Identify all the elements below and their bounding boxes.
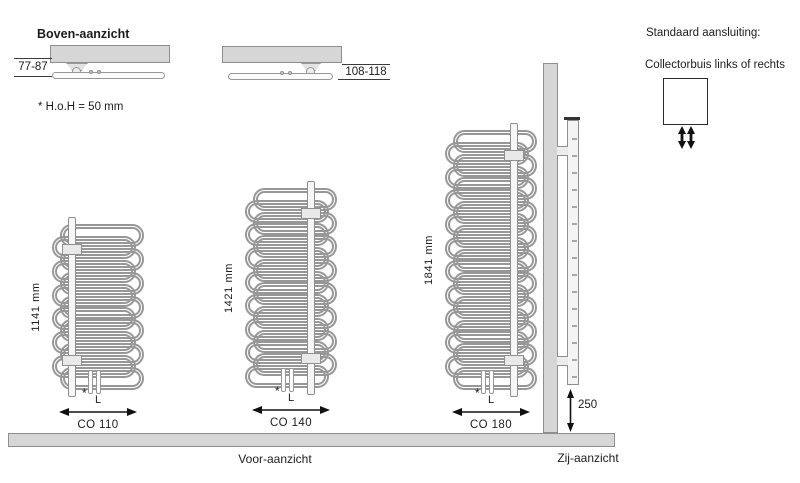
front-view-label: Voor-aanzicht — [215, 453, 335, 467]
width-dim-label: L — [59, 395, 137, 406]
side-bracket-bottom — [557, 356, 568, 366]
model-label: CO 110 — [59, 420, 137, 432]
width-arrow-icon — [59, 407, 137, 417]
width-dimension: L CO 110 — [59, 395, 137, 432]
connection-dot — [280, 71, 284, 75]
radiator-symbol-square — [663, 78, 708, 125]
wall-distance-dim-right: 108-118 — [340, 66, 392, 79]
dimension-line — [14, 76, 52, 77]
mounting-bracket-top — [504, 150, 524, 161]
dimension-line — [14, 58, 52, 59]
radiator-front-co180: 1841 mm * L CO 180 — [445, 130, 537, 390]
side-view-label: Zij-aanzicht — [548, 452, 628, 466]
mounting-bracket-bottom — [62, 355, 82, 366]
radiator-tube-top-view-left — [52, 72, 165, 79]
width-arrow-icon — [252, 405, 330, 415]
wall-side-view — [543, 63, 558, 433]
mounting-bracket-top — [62, 244, 82, 255]
connection-tubes — [481, 370, 494, 394]
radiator-height-label: 1141 mm — [30, 282, 42, 331]
mounting-bracket-bottom — [301, 353, 321, 364]
radiator-front-co140: 1421 mm * L CO 140 — [245, 188, 337, 388]
mounting-bracket-top — [301, 208, 321, 219]
floor-clearance-dim: 250 — [578, 399, 597, 412]
tube-loops — [245, 188, 337, 388]
technical-drawing-canvas: Boven-aanzicht 77-87 108-118 * H.o.H = 5… — [0, 0, 800, 483]
connection-tubes — [281, 368, 294, 392]
radiator-front-co110: 1141 mm * L CO 110 — [52, 224, 144, 390]
dimension-line — [338, 79, 390, 80]
dimension-line — [342, 64, 390, 65]
top-view-title: Boven-aanzicht — [37, 27, 129, 41]
connection-tubes — [88, 370, 101, 394]
mounting-bracket-bottom — [504, 355, 524, 366]
wall-strip-top-view-left — [50, 45, 170, 63]
side-bracket-top — [557, 146, 568, 156]
standard-connection-title: Standaard aansluiting: — [646, 27, 760, 40]
hoh-note: * H.o.H = 50 mm — [38, 101, 123, 114]
radiator-profile-side-view — [567, 120, 579, 385]
width-dim-label: L — [452, 395, 530, 406]
width-arrow-icon — [452, 407, 530, 417]
connection-dot — [97, 70, 101, 74]
tube-loop — [453, 367, 537, 390]
clearance-arrow-icon — [566, 389, 575, 432]
floor-strip — [8, 433, 615, 447]
width-dimension: L CO 140 — [252, 393, 330, 430]
connection-dot — [89, 70, 93, 74]
collector-pipe-note: Collectorbuis links of rechts — [645, 59, 785, 72]
width-dimension: L CO 180 — [452, 395, 530, 432]
flow-arrows-icon — [673, 126, 699, 149]
radiator-height-label: 1841 mm — [423, 235, 435, 285]
model-label: CO 140 — [252, 418, 330, 430]
radiator-height-label: 1421 mm — [223, 263, 235, 313]
wall-distance-dim-left: 77-87 — [13, 61, 53, 74]
wall-strip-top-view-right — [222, 46, 342, 63]
width-dim-label: L — [252, 393, 330, 404]
tube-loops — [445, 130, 537, 390]
tube-segments — [572, 123, 577, 382]
connection-dot — [288, 71, 292, 75]
model-label: CO 180 — [452, 420, 530, 432]
